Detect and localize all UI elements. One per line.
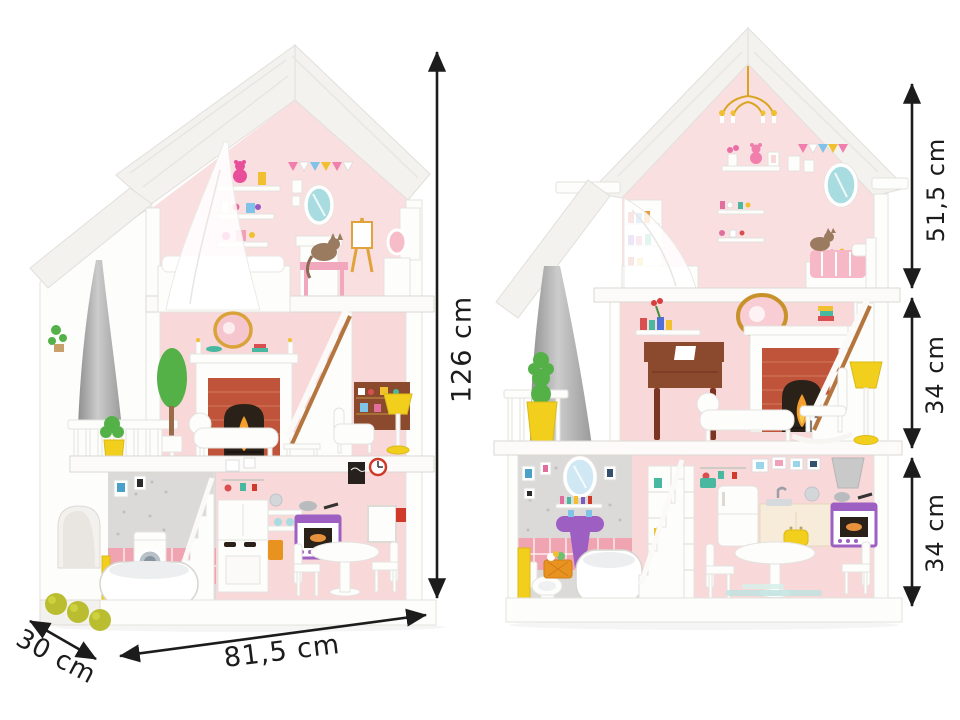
yellow-cabinet [518, 548, 530, 604]
oval-mirror-icon [824, 163, 858, 207]
bathtub-icon [100, 561, 198, 606]
bush-icon [67, 601, 89, 623]
dimension-label-middle-height: 34 cm [921, 320, 949, 430]
purple-stove-icon [832, 504, 876, 546]
bush-icon [89, 609, 111, 631]
dimension-label-attic-height: 51,5 cm [922, 130, 950, 250]
wall-clock-icon [370, 459, 386, 475]
bottom-left-wall [508, 455, 518, 598]
dimension-label-ground-height: 34 cm [921, 478, 949, 588]
product-dimension-image: 126 cm 81,5 cm 30 cm 51,5 cm 34 cm 34 cm [0, 0, 960, 720]
dollhouse-angled-view [30, 45, 445, 632]
dollhouse-front-view [494, 28, 908, 630]
middle-floor-slab [494, 441, 902, 455]
dimension-label-overall-height: 126 cm [447, 280, 478, 420]
range-hood-icon [832, 458, 864, 488]
mid-left-wall [610, 302, 620, 441]
towel-icon [268, 540, 283, 560]
teddy-bear-icon [233, 160, 247, 183]
toaster-icon [700, 478, 716, 488]
window-opening [368, 506, 396, 542]
potted-tree-icon [157, 348, 187, 408]
oval-mirror-icon [563, 456, 597, 498]
oval-mirror-icon [304, 185, 334, 225]
fridge-icon [718, 486, 758, 546]
stove-unit-icon [218, 500, 268, 592]
dollhouse-illustration [0, 0, 960, 720]
bathtub-icon [576, 550, 642, 604]
right-house-base [506, 598, 902, 622]
bush-icon [45, 593, 67, 615]
